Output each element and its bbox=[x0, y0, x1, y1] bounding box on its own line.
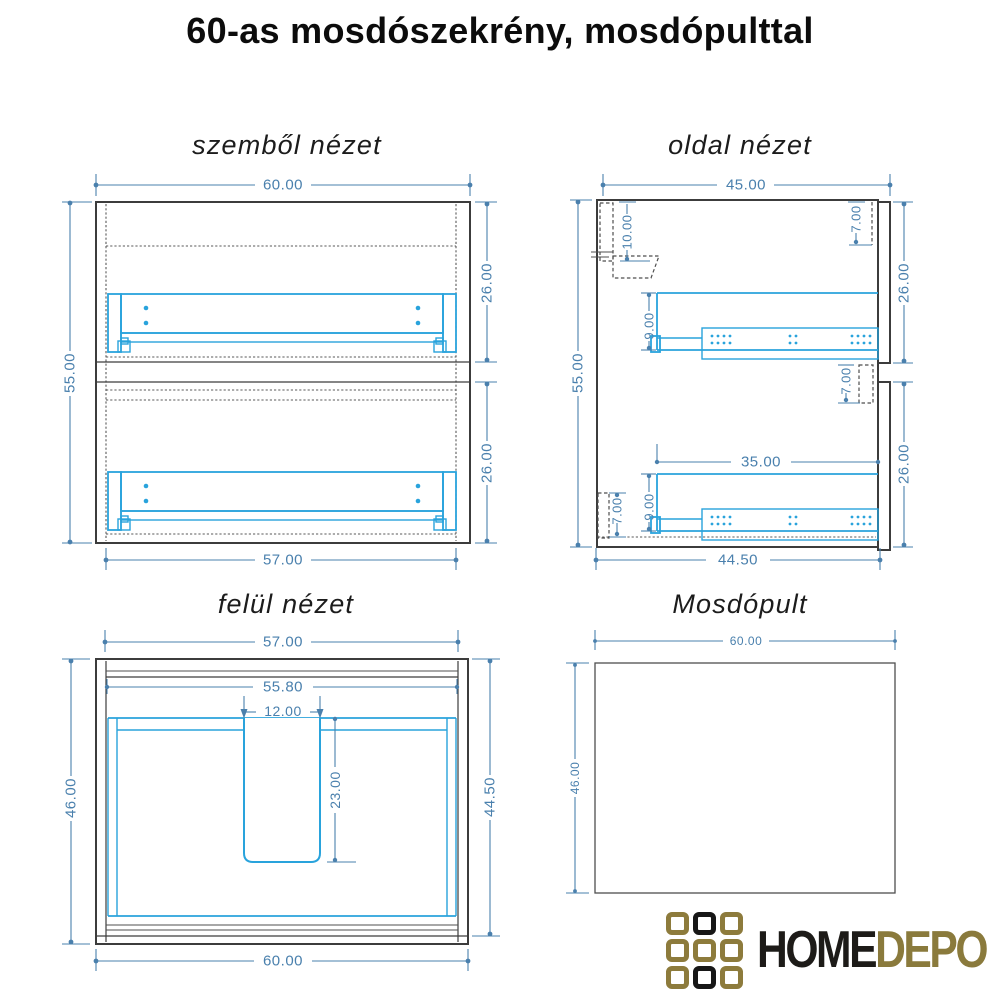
logo-grid-cell-black bbox=[693, 912, 716, 935]
dim-top-cutout-depth: 23.00 bbox=[327, 717, 356, 862]
homedepo-logo: HOMEDEPO bbox=[666, 903, 1000, 997]
dim-label: 12.00 bbox=[264, 703, 302, 719]
front-cabinet-outline bbox=[96, 202, 470, 543]
dim-top-depth-left: 46.00 bbox=[62, 659, 90, 945]
side-lower-slide-rivets bbox=[711, 516, 872, 526]
dim-side-upper-section: 26.00 bbox=[893, 202, 913, 364]
front-lower-drawer-screw-holes bbox=[144, 484, 421, 504]
dim-front-upper-section: 26.00 bbox=[475, 202, 497, 363]
top-siphon-cutout bbox=[244, 718, 320, 862]
dim-top-inner-width: 57.00 bbox=[103, 630, 461, 652]
dim-label: 26.00 bbox=[896, 263, 913, 303]
side-divider-hidden-edge bbox=[859, 365, 873, 403]
logo-grid-cell-black bbox=[693, 966, 716, 989]
dim-label: 7.00 bbox=[849, 205, 864, 232]
dim-label: 60.00 bbox=[263, 953, 303, 970]
dim-label: 10.00 bbox=[620, 214, 635, 249]
dim-label: 60.00 bbox=[263, 177, 303, 194]
logo-grid-cell-gold bbox=[666, 939, 689, 962]
dim-label: 46.00 bbox=[568, 762, 582, 795]
dim-label: 7.00 bbox=[839, 367, 854, 394]
dim-side-top-rail: 7.00 bbox=[848, 202, 872, 245]
logo-grid-cell-gold bbox=[720, 939, 743, 962]
dim-top-width-bottom: 60.00 bbox=[94, 949, 471, 971]
dim-label: 44.50 bbox=[482, 777, 499, 817]
front-view: szemből nézet 60.00 bbox=[62, 130, 498, 570]
dim-top-cutout-width: 12.00 bbox=[241, 696, 324, 719]
dim-side-depth-top: 45.00 bbox=[601, 174, 893, 196]
dim-side-lower-drawer-height: 9.00 bbox=[641, 474, 657, 531]
side-upper-slide-rivets bbox=[711, 335, 872, 345]
logo-grid-cell-gold bbox=[720, 966, 743, 989]
front-upper-drawer-screw-holes bbox=[144, 306, 421, 326]
counter-outline bbox=[595, 663, 895, 893]
dim-top-back-panel-width: 55.80 bbox=[105, 679, 459, 696]
top-view-title: felül nézet bbox=[218, 589, 355, 619]
dim-counter-width-top: 60.00 bbox=[593, 630, 897, 650]
dim-label: 26.00 bbox=[479, 443, 496, 483]
side-upper-drawer bbox=[651, 293, 878, 359]
drawing-sheet: 60-as mosdószekrény, mosdópulttal szembő… bbox=[0, 0, 1000, 1000]
side-plinth-hidden-edge bbox=[598, 493, 609, 538]
dim-label: 60.00 bbox=[730, 634, 763, 648]
logo-grid-cell-gold bbox=[666, 966, 689, 989]
logo-grid-cell-gold bbox=[693, 939, 716, 962]
logo-grid-cell-gold bbox=[666, 912, 689, 935]
dim-side-hanger-offset: 10.00 bbox=[619, 202, 650, 261]
dim-front-lower-section: 26.00 bbox=[475, 382, 497, 544]
page-title: 60-as mosdószekrény, mosdópulttal bbox=[0, 10, 1000, 52]
dim-counter-depth-left: 46.00 bbox=[566, 663, 589, 893]
dim-front-width-top: 60.00 bbox=[94, 174, 473, 196]
dim-label: 35.00 bbox=[741, 454, 781, 471]
dim-front-height-left: 55.00 bbox=[62, 201, 93, 545]
dim-label: 55.00 bbox=[62, 353, 79, 393]
logo-wordmark: HOMEDEPO bbox=[757, 924, 986, 976]
logo-word-depo: DEPO bbox=[875, 921, 986, 979]
side-view-title: oldal nézet bbox=[668, 130, 812, 160]
dim-label: 26.00 bbox=[479, 263, 496, 303]
dim-label: 44.50 bbox=[718, 552, 758, 569]
logo-grid-cell-gold bbox=[720, 912, 743, 935]
logo-grid bbox=[666, 912, 743, 989]
front-panel-edges bbox=[96, 204, 470, 541]
dim-label: 7.00 bbox=[610, 497, 625, 524]
side-view: oldal nézet 45.00 bbox=[570, 130, 914, 570]
dim-label: 9.00 bbox=[642, 493, 657, 520]
dim-top-body-depth-right: 44.50 bbox=[472, 659, 500, 937]
dim-label: 9.00 bbox=[642, 312, 657, 339]
dim-label: 55.00 bbox=[570, 353, 587, 393]
dim-side-divider-gap: 7.00 bbox=[838, 365, 860, 403]
dim-side-depth-bottom: 44.50 bbox=[594, 548, 883, 570]
side-upper-front-panel bbox=[878, 202, 890, 363]
dim-label: 26.00 bbox=[896, 444, 913, 484]
dim-side-slide-length: 35.00 bbox=[655, 444, 880, 471]
dim-label: 57.00 bbox=[263, 552, 303, 569]
dim-side-plinth: 7.00 bbox=[609, 493, 626, 537]
counter-view: Mosdópult 60.00 46.00 bbox=[566, 589, 897, 893]
front-upper-drawer bbox=[108, 294, 456, 352]
counter-view-title: Mosdópult bbox=[672, 589, 808, 619]
logo-word-home: HOME bbox=[757, 921, 875, 979]
dim-side-lower-section: 26.00 bbox=[893, 382, 913, 548]
front-view-title: szemből nézet bbox=[192, 130, 382, 160]
technical-drawing-canvas: szemből nézet 60.00 bbox=[0, 130, 1000, 1000]
side-body-outline bbox=[597, 200, 878, 547]
dim-side-upper-drawer-height: 9.00 bbox=[641, 293, 657, 350]
dim-side-height-left: 55.00 bbox=[570, 200, 593, 548]
top-drawer-plan bbox=[108, 718, 456, 916]
dim-label: 45.00 bbox=[726, 177, 766, 194]
top-view: felül nézet 57.00 bbox=[62, 589, 500, 971]
dim-label: 23.00 bbox=[327, 771, 343, 809]
front-lower-drawer bbox=[108, 472, 456, 530]
dim-label: 57.00 bbox=[263, 634, 303, 651]
side-lower-front-panel bbox=[878, 382, 890, 550]
dim-front-width-bottom: 57.00 bbox=[104, 548, 459, 570]
side-lower-drawer bbox=[651, 474, 878, 540]
dim-label: 46.00 bbox=[63, 778, 80, 818]
dim-label: 55.80 bbox=[263, 679, 303, 696]
